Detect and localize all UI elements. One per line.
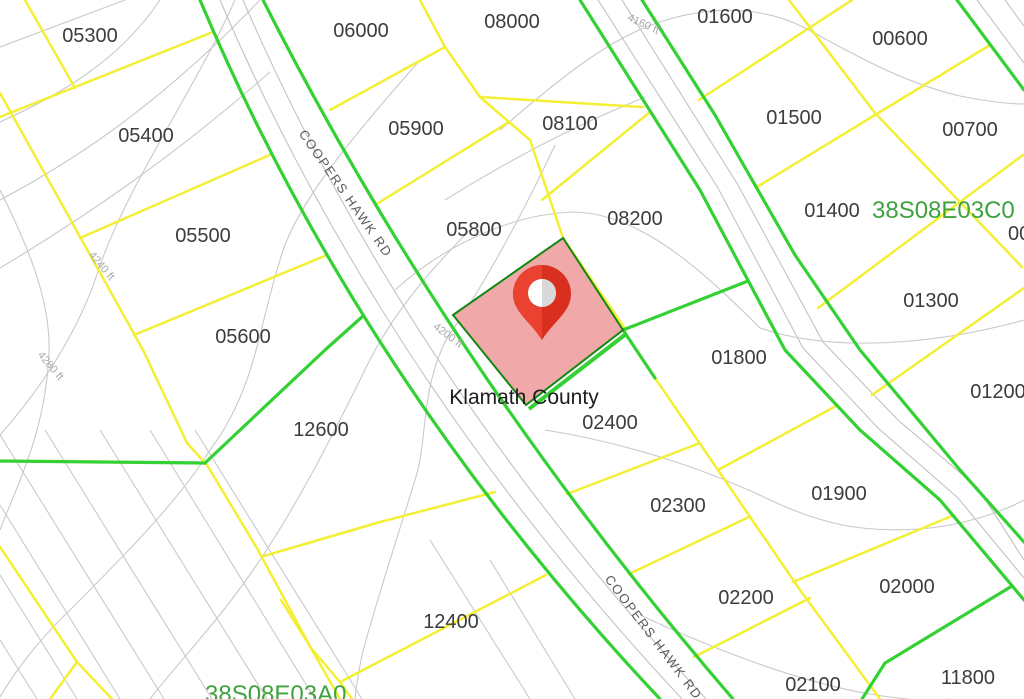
- road-label: COOPERS HAWK RD: [296, 127, 395, 260]
- parcel-label: 01900: [811, 483, 867, 505]
- parcel-label: 12400: [423, 611, 479, 633]
- contour-label: 4280 ft: [35, 349, 66, 382]
- parcel-label: 01400: [804, 200, 860, 222]
- road-label: COOPERS HAWK RD: [602, 572, 705, 699]
- parcel-label: 02400: [582, 412, 638, 434]
- parcel-label: 02000: [879, 576, 935, 598]
- parcel-label: 00600: [872, 28, 928, 50]
- parcel-label-partial: 00: [1008, 223, 1024, 245]
- parcel-map: 05300 06000 08000 01600 00600 05400 0590…: [0, 0, 1024, 699]
- parcel-label: 01300: [903, 290, 959, 312]
- parcel-label: 11800: [941, 667, 995, 689]
- parcel-label: 02200: [718, 587, 774, 609]
- parcel-label: 05600: [215, 326, 271, 348]
- parcel-label: 05300: [62, 25, 118, 47]
- parcel-label: 05500: [175, 225, 231, 247]
- parcel-map-canvas[interactable]: 05300 06000 08000 01600 00600 05400 0590…: [0, 0, 1024, 699]
- county-label: Klamath County: [449, 386, 599, 409]
- parcel-label: 01200: [970, 381, 1024, 403]
- contour-label: 4240 ft: [86, 249, 117, 282]
- parcel-label: 01600: [697, 6, 753, 28]
- parcel-label: 08200: [607, 208, 663, 230]
- parcel-label: 12600: [293, 419, 349, 441]
- parcel-label: 06000: [333, 20, 389, 42]
- parcel-label: 08000: [484, 11, 540, 33]
- township-label: 38S08E03C0: [872, 197, 1015, 224]
- parcel-label: 05900: [388, 118, 444, 140]
- parcel-label: 01500: [766, 107, 822, 129]
- parcel-label: 05800: [446, 219, 502, 241]
- parcel-label: 02300: [650, 495, 706, 517]
- parcel-label: 08100: [542, 113, 598, 135]
- township-label: 38S08E03A0: [205, 681, 346, 699]
- parcel-label: 00700: [942, 119, 998, 141]
- parcel-label: 01800: [711, 347, 767, 369]
- parcel-label: 05400: [118, 125, 174, 147]
- parcel-label: 02100: [785, 674, 841, 696]
